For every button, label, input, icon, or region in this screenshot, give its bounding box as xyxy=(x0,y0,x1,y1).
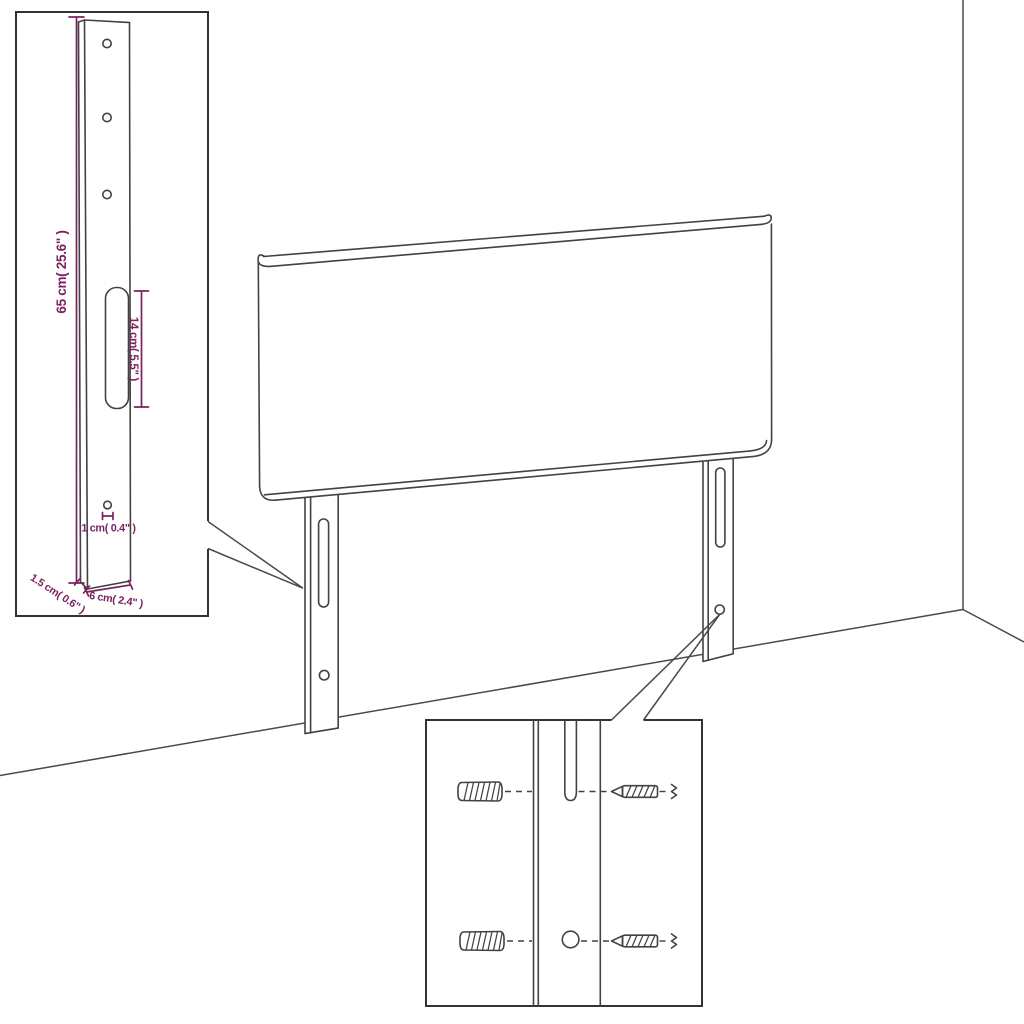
headboard-leg-left xyxy=(305,494,338,733)
inset-leader-lines xyxy=(208,522,303,589)
panel-face xyxy=(258,222,772,500)
mounting-detail-inset xyxy=(426,614,720,1006)
floor-line-right xyxy=(963,610,1024,643)
headboard-panel xyxy=(258,215,772,500)
headboard-dimension-diagram: 65 cm( 25.6" ) 14 cm( 5.5" ) 1 cm( 0.4" … xyxy=(0,0,1024,1024)
diagram-svg: 65 cm( 25.6" ) 14 cm( 5.5" ) 1 cm( 0.4" … xyxy=(0,0,1024,1024)
dimension-label-14cm: 14 cm( 5.5" ) xyxy=(127,317,139,382)
leg-right-edge xyxy=(130,23,131,582)
dimension-label-1cm: 1 cm( 0.4" ) xyxy=(81,523,136,535)
dimension-label-65cm: 65 cm( 25.6" ) xyxy=(54,230,69,313)
